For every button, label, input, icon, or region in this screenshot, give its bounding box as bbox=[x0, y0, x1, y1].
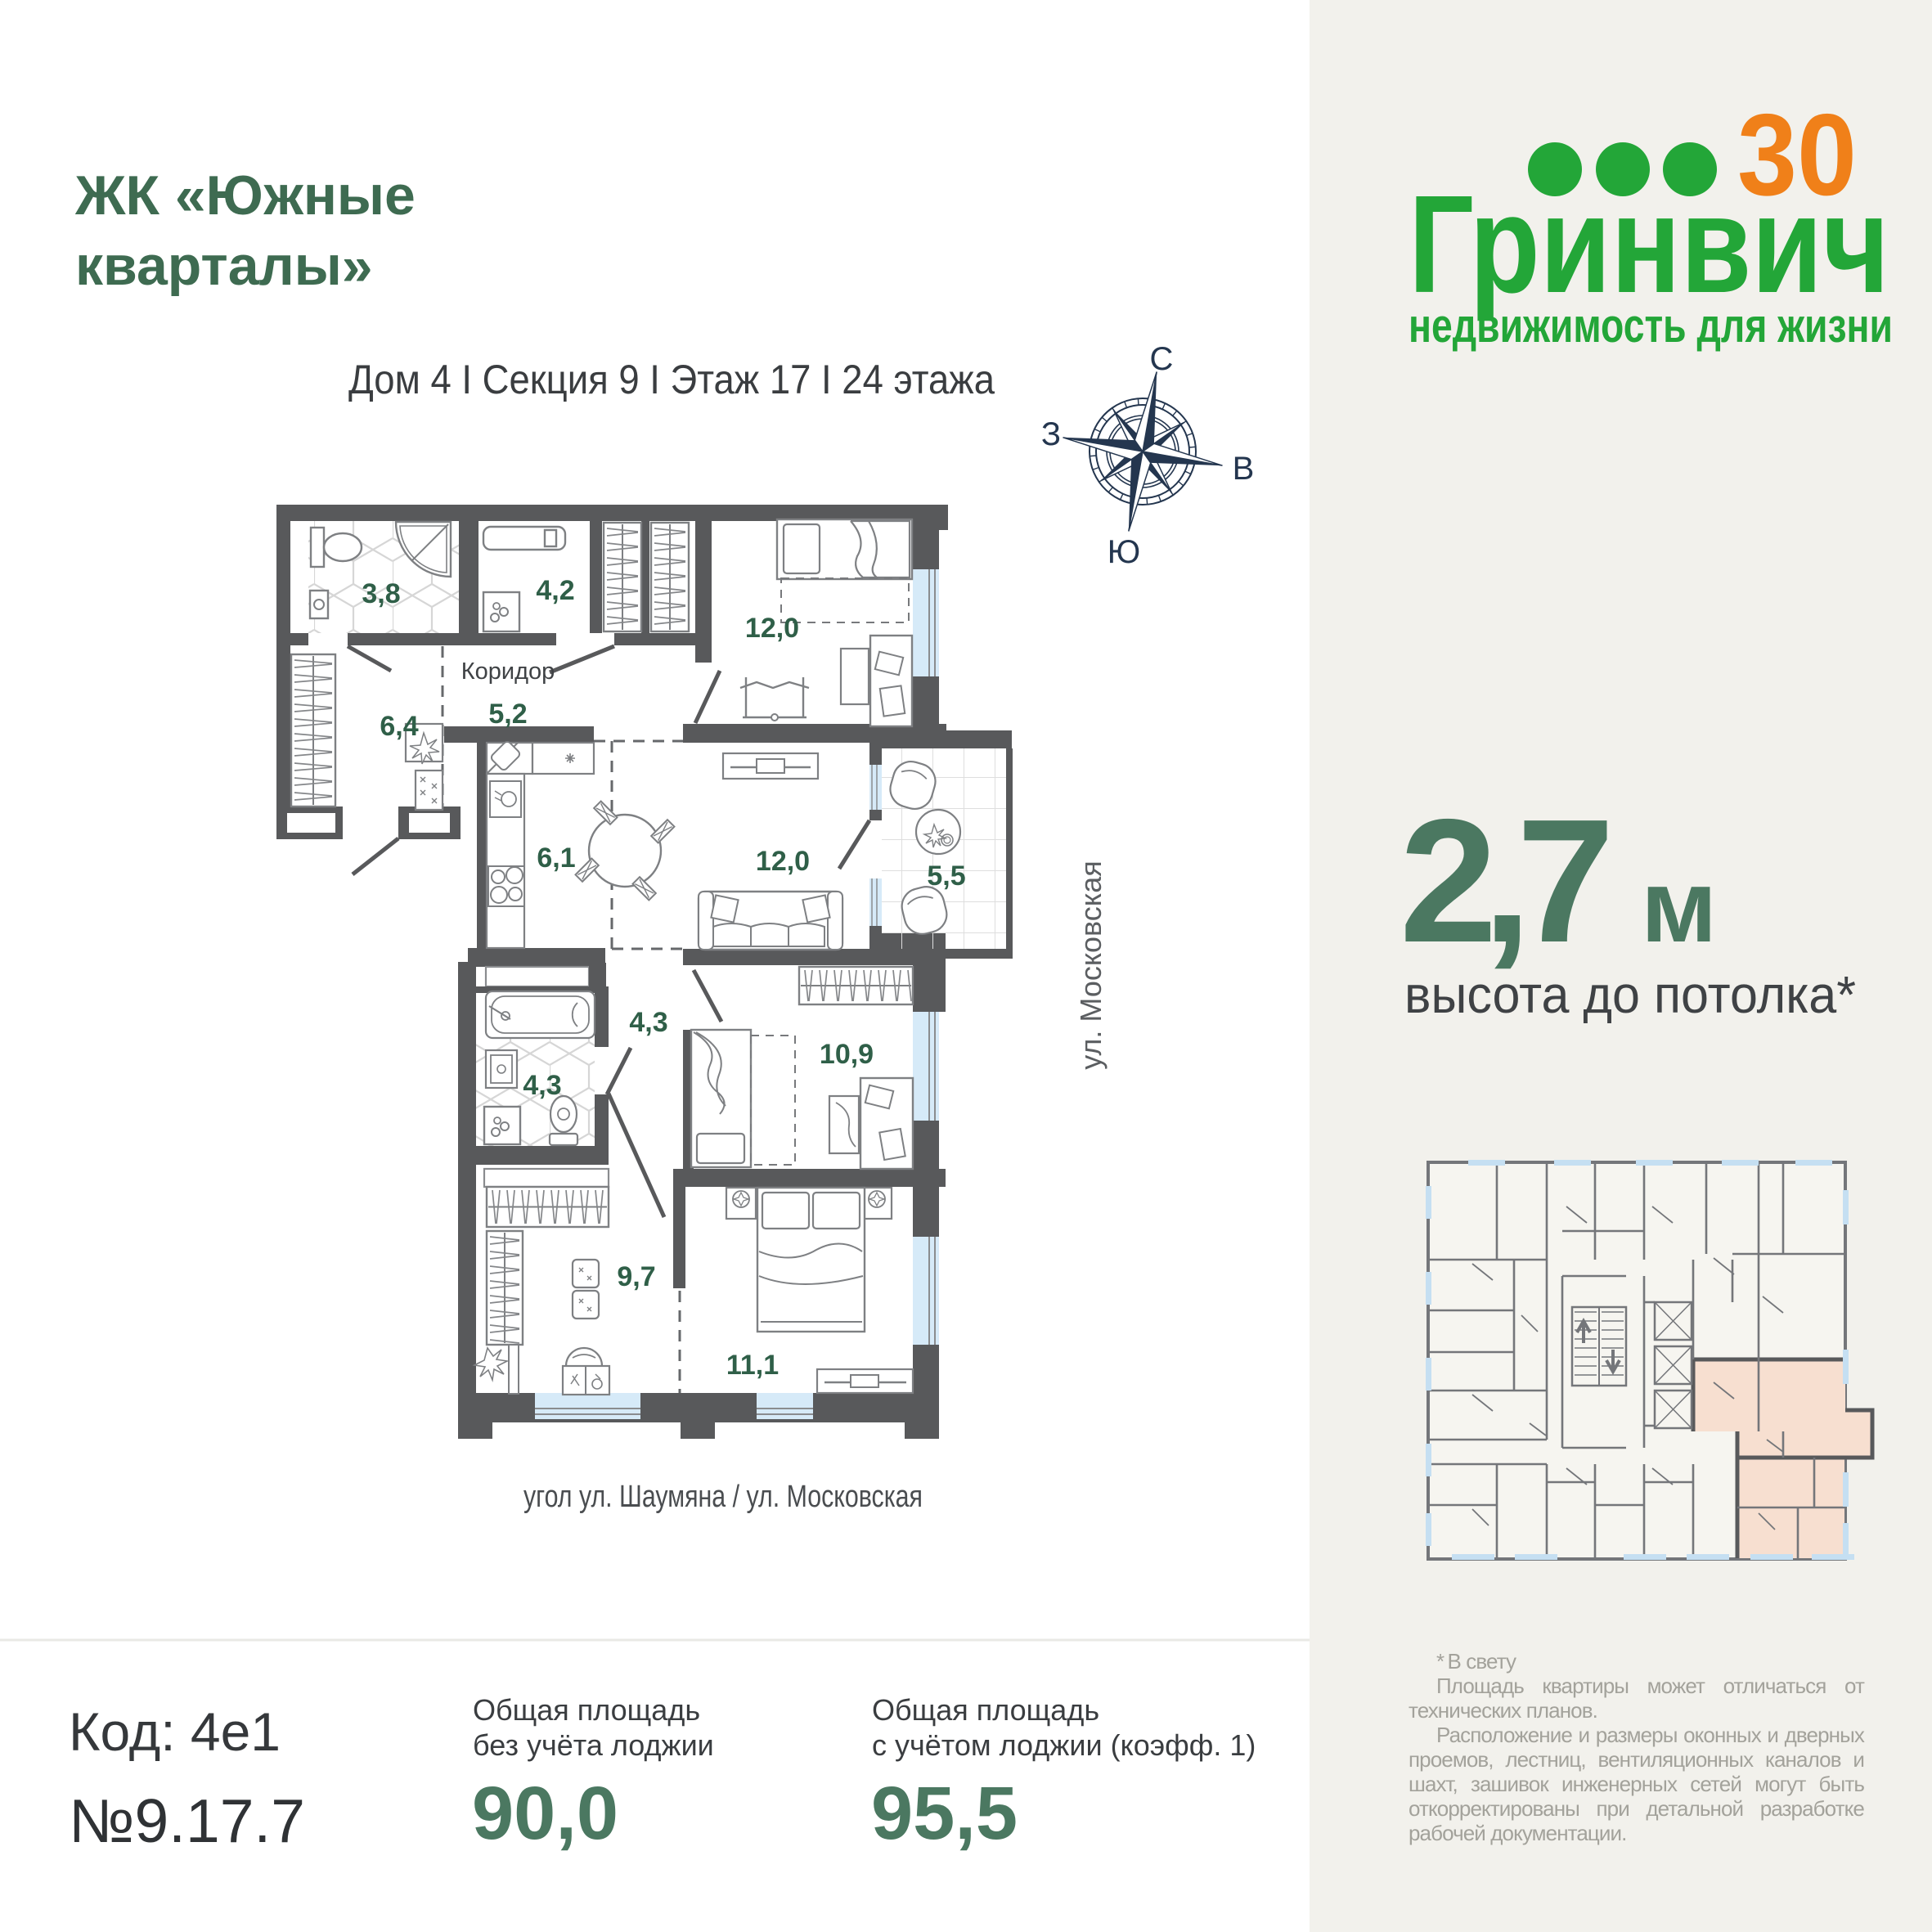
svg-text:9,7: 9,7 bbox=[617, 1261, 655, 1292]
svg-text:№9.17.7: №9.17.7 bbox=[69, 1786, 305, 1855]
svg-text:3,8: 3,8 bbox=[362, 578, 400, 609]
svg-text:высота до потолка*: высота до потолка* bbox=[1404, 965, 1856, 1024]
svg-text:угол ул. Шаумяна / ул. Московс: угол ул. Шаумяна / ул. Московская bbox=[523, 1480, 923, 1514]
svg-text:м: м bbox=[1641, 848, 1717, 964]
svg-text:без учёта лоджии: без учёта лоджии bbox=[473, 1728, 714, 1762]
svg-text:4,3: 4,3 bbox=[629, 1007, 667, 1038]
svg-text:недвижимость для жизни: недвижимость для жизни bbox=[1409, 299, 1893, 353]
svg-text:Ю: Ю bbox=[1108, 534, 1140, 570]
svg-text:З: З bbox=[1041, 416, 1061, 452]
svg-text:Код: 4е1: Код: 4е1 bbox=[69, 1701, 281, 1762]
svg-text:кварталы»: кварталы» bbox=[75, 235, 373, 297]
svg-text:Общая площадь: Общая площадь bbox=[872, 1693, 1099, 1727]
svg-text:Коридор: Коридор bbox=[461, 658, 555, 685]
svg-text:ул. Московская: ул. Московская bbox=[1074, 860, 1108, 1070]
svg-text:90,0: 90,0 bbox=[472, 1772, 618, 1855]
svg-text:4,3: 4,3 bbox=[523, 1070, 561, 1101]
svg-text:6,1: 6,1 bbox=[537, 842, 575, 874]
svg-text:ЖК «Южные: ЖК «Южные bbox=[74, 164, 416, 227]
svg-text:с учётом лоджии (коэфф. 1): с учётом лоджии (коэфф. 1) bbox=[872, 1728, 1256, 1762]
svg-text:11,1: 11,1 bbox=[726, 1350, 779, 1381]
svg-text:12,0: 12,0 bbox=[745, 613, 799, 644]
svg-text:5,5: 5,5 bbox=[927, 860, 965, 892]
svg-text:95,5: 95,5 bbox=[871, 1772, 1018, 1855]
svg-text:Дом 4 I Секция 9 I Этаж 17 I 2: Дом 4 I Секция 9 I Этаж 17 I 24 этажа bbox=[348, 357, 995, 402]
svg-text:2,7: 2,7 bbox=[1400, 782, 1607, 979]
svg-text:Общая площадь: Общая площадь bbox=[473, 1693, 700, 1727]
svg-text:В: В bbox=[1233, 451, 1255, 487]
svg-text:10,9: 10,9 bbox=[820, 1039, 874, 1070]
svg-text:12,0: 12,0 bbox=[756, 846, 810, 877]
svg-text:С: С bbox=[1150, 341, 1174, 377]
svg-text:6,4: 6,4 bbox=[380, 711, 418, 742]
svg-text:5,2: 5,2 bbox=[488, 699, 527, 730]
svg-text:4,2: 4,2 bbox=[536, 575, 574, 606]
